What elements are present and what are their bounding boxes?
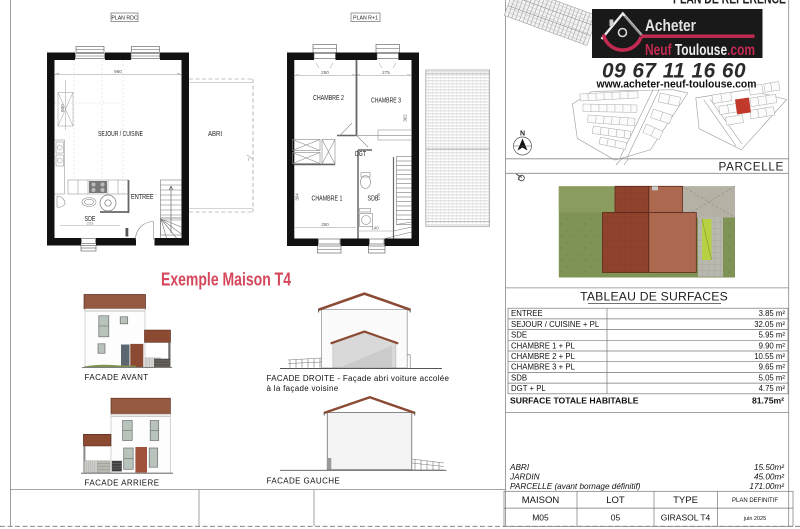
svg-text:PLAN DE REFERENCE: PLAN DE REFERENCE xyxy=(673,0,786,7)
svg-text:CHAMBRE 1 + PL: CHAMBRE 1 + PL xyxy=(511,341,576,350)
svg-text:304: 304 xyxy=(295,193,300,201)
svg-text:JARDIN: JARDIN xyxy=(509,473,540,482)
svg-text:45.00m²: 45.00m² xyxy=(754,473,784,482)
svg-text:à la façade voisine: à la façade voisine xyxy=(267,384,339,393)
svg-text:DGT: DGT xyxy=(355,151,367,158)
svg-text:PLAN DEFINITIF: PLAN DEFINITIF xyxy=(732,498,778,504)
svg-text:ENTREE: ENTREE xyxy=(131,194,154,201)
svg-text:SDB: SDB xyxy=(511,373,527,382)
svg-text:Acheter: Acheter xyxy=(645,16,696,35)
svg-text:SEJOUR / CUISINE: SEJOUR / CUISINE xyxy=(98,131,143,138)
svg-text:ENTREE: ENTREE xyxy=(511,309,543,318)
svg-text:TYPE: TYPE xyxy=(673,495,698,506)
svg-text:PLAN R+1: PLAN R+1 xyxy=(353,15,378,21)
svg-text:FACADE AVANT: FACADE AVANT xyxy=(85,373,149,382)
svg-text:600: 600 xyxy=(60,104,65,112)
svg-text:5.05 m²: 5.05 m² xyxy=(759,373,786,382)
svg-text:32.05 m²: 32.05 m² xyxy=(754,320,785,329)
svg-text:CHAMBRE 2: CHAMBRE 2 xyxy=(313,95,344,102)
svg-text:275: 275 xyxy=(382,70,390,75)
svg-text:N: N xyxy=(520,131,525,138)
svg-text:15.50m²: 15.50m² xyxy=(754,463,784,472)
svg-text:CHAMBRE 3: CHAMBRE 3 xyxy=(371,98,401,105)
svg-text:9.65 m²: 9.65 m² xyxy=(759,363,786,372)
svg-text:Exemple Maison T4: Exemple Maison T4 xyxy=(161,269,292,290)
svg-text:140: 140 xyxy=(371,226,379,231)
svg-text:PARCELLE: PARCELLE xyxy=(718,159,784,173)
svg-text:233: 233 xyxy=(87,220,94,225)
svg-text:CHAMBRE 2 + PL: CHAMBRE 2 + PL xyxy=(511,352,576,361)
svg-text:GIRASOL T4: GIRASOL T4 xyxy=(661,513,711,523)
svg-text:250: 250 xyxy=(321,70,329,75)
svg-text:ABRI: ABRI xyxy=(208,131,222,138)
svg-text:250: 250 xyxy=(321,222,329,227)
svg-text:www.acheter-neuf-toulouse.com: www.acheter-neuf-toulouse.com xyxy=(596,79,757,91)
svg-text:175: 175 xyxy=(376,193,381,201)
svg-text:LOT: LOT xyxy=(606,495,625,506)
svg-text:10.55 m²: 10.55 m² xyxy=(754,352,785,361)
svg-text:171.00m²: 171.00m² xyxy=(749,482,784,491)
svg-text:SURFACE TOTALE HABITABLE: SURFACE TOTALE HABITABLE xyxy=(510,396,639,406)
svg-text:5.95 m²: 5.95 m² xyxy=(759,331,786,340)
svg-text:PLAN RDC: PLAN RDC xyxy=(111,15,137,21)
svg-text:05: 05 xyxy=(611,513,621,523)
svg-text:FACADE GAUCHE: FACADE GAUCHE xyxy=(267,476,341,485)
svg-text:MAISON: MAISON xyxy=(522,495,560,506)
svg-text:4.75 m²: 4.75 m² xyxy=(759,384,786,393)
svg-text:CHAMBRE 1: CHAMBRE 1 xyxy=(312,196,343,203)
svg-text:960: 960 xyxy=(114,69,122,74)
svg-text:9.90 m²: 9.90 m² xyxy=(759,341,786,350)
svg-text:302: 302 xyxy=(403,114,408,122)
svg-text:CHAMBRE 3 + PL: CHAMBRE 3 + PL xyxy=(511,363,576,372)
svg-text:SEJOUR / CUISINE + PL: SEJOUR / CUISINE + PL xyxy=(511,320,600,329)
svg-text:Neuf Toulouse.com: Neuf Toulouse.com xyxy=(645,42,755,59)
svg-text:DGT + PL: DGT + PL xyxy=(511,384,546,393)
svg-text:juin 2025: juin 2025 xyxy=(743,516,766,522)
svg-text:SDE: SDE xyxy=(511,331,527,340)
svg-text:M05: M05 xyxy=(532,513,549,523)
svg-text:PARCELLE (avant bornage défin: PARCELLE (avant bornage définitif) xyxy=(510,482,641,491)
svg-text:FACADE ARRIERE: FACADE ARRIERE xyxy=(85,478,160,487)
svg-text:FACADE DROITE - Façade abri vo: FACADE DROITE - Façade abri voiture acco… xyxy=(267,374,450,383)
svg-text:3.85 m²: 3.85 m² xyxy=(759,309,786,318)
svg-text:ABRI: ABRI xyxy=(509,463,530,472)
svg-text:TABLEAU DE SURFACES: TABLEAU DE SURFACES xyxy=(580,289,728,303)
svg-text:81.75m²: 81.75m² xyxy=(752,396,784,406)
